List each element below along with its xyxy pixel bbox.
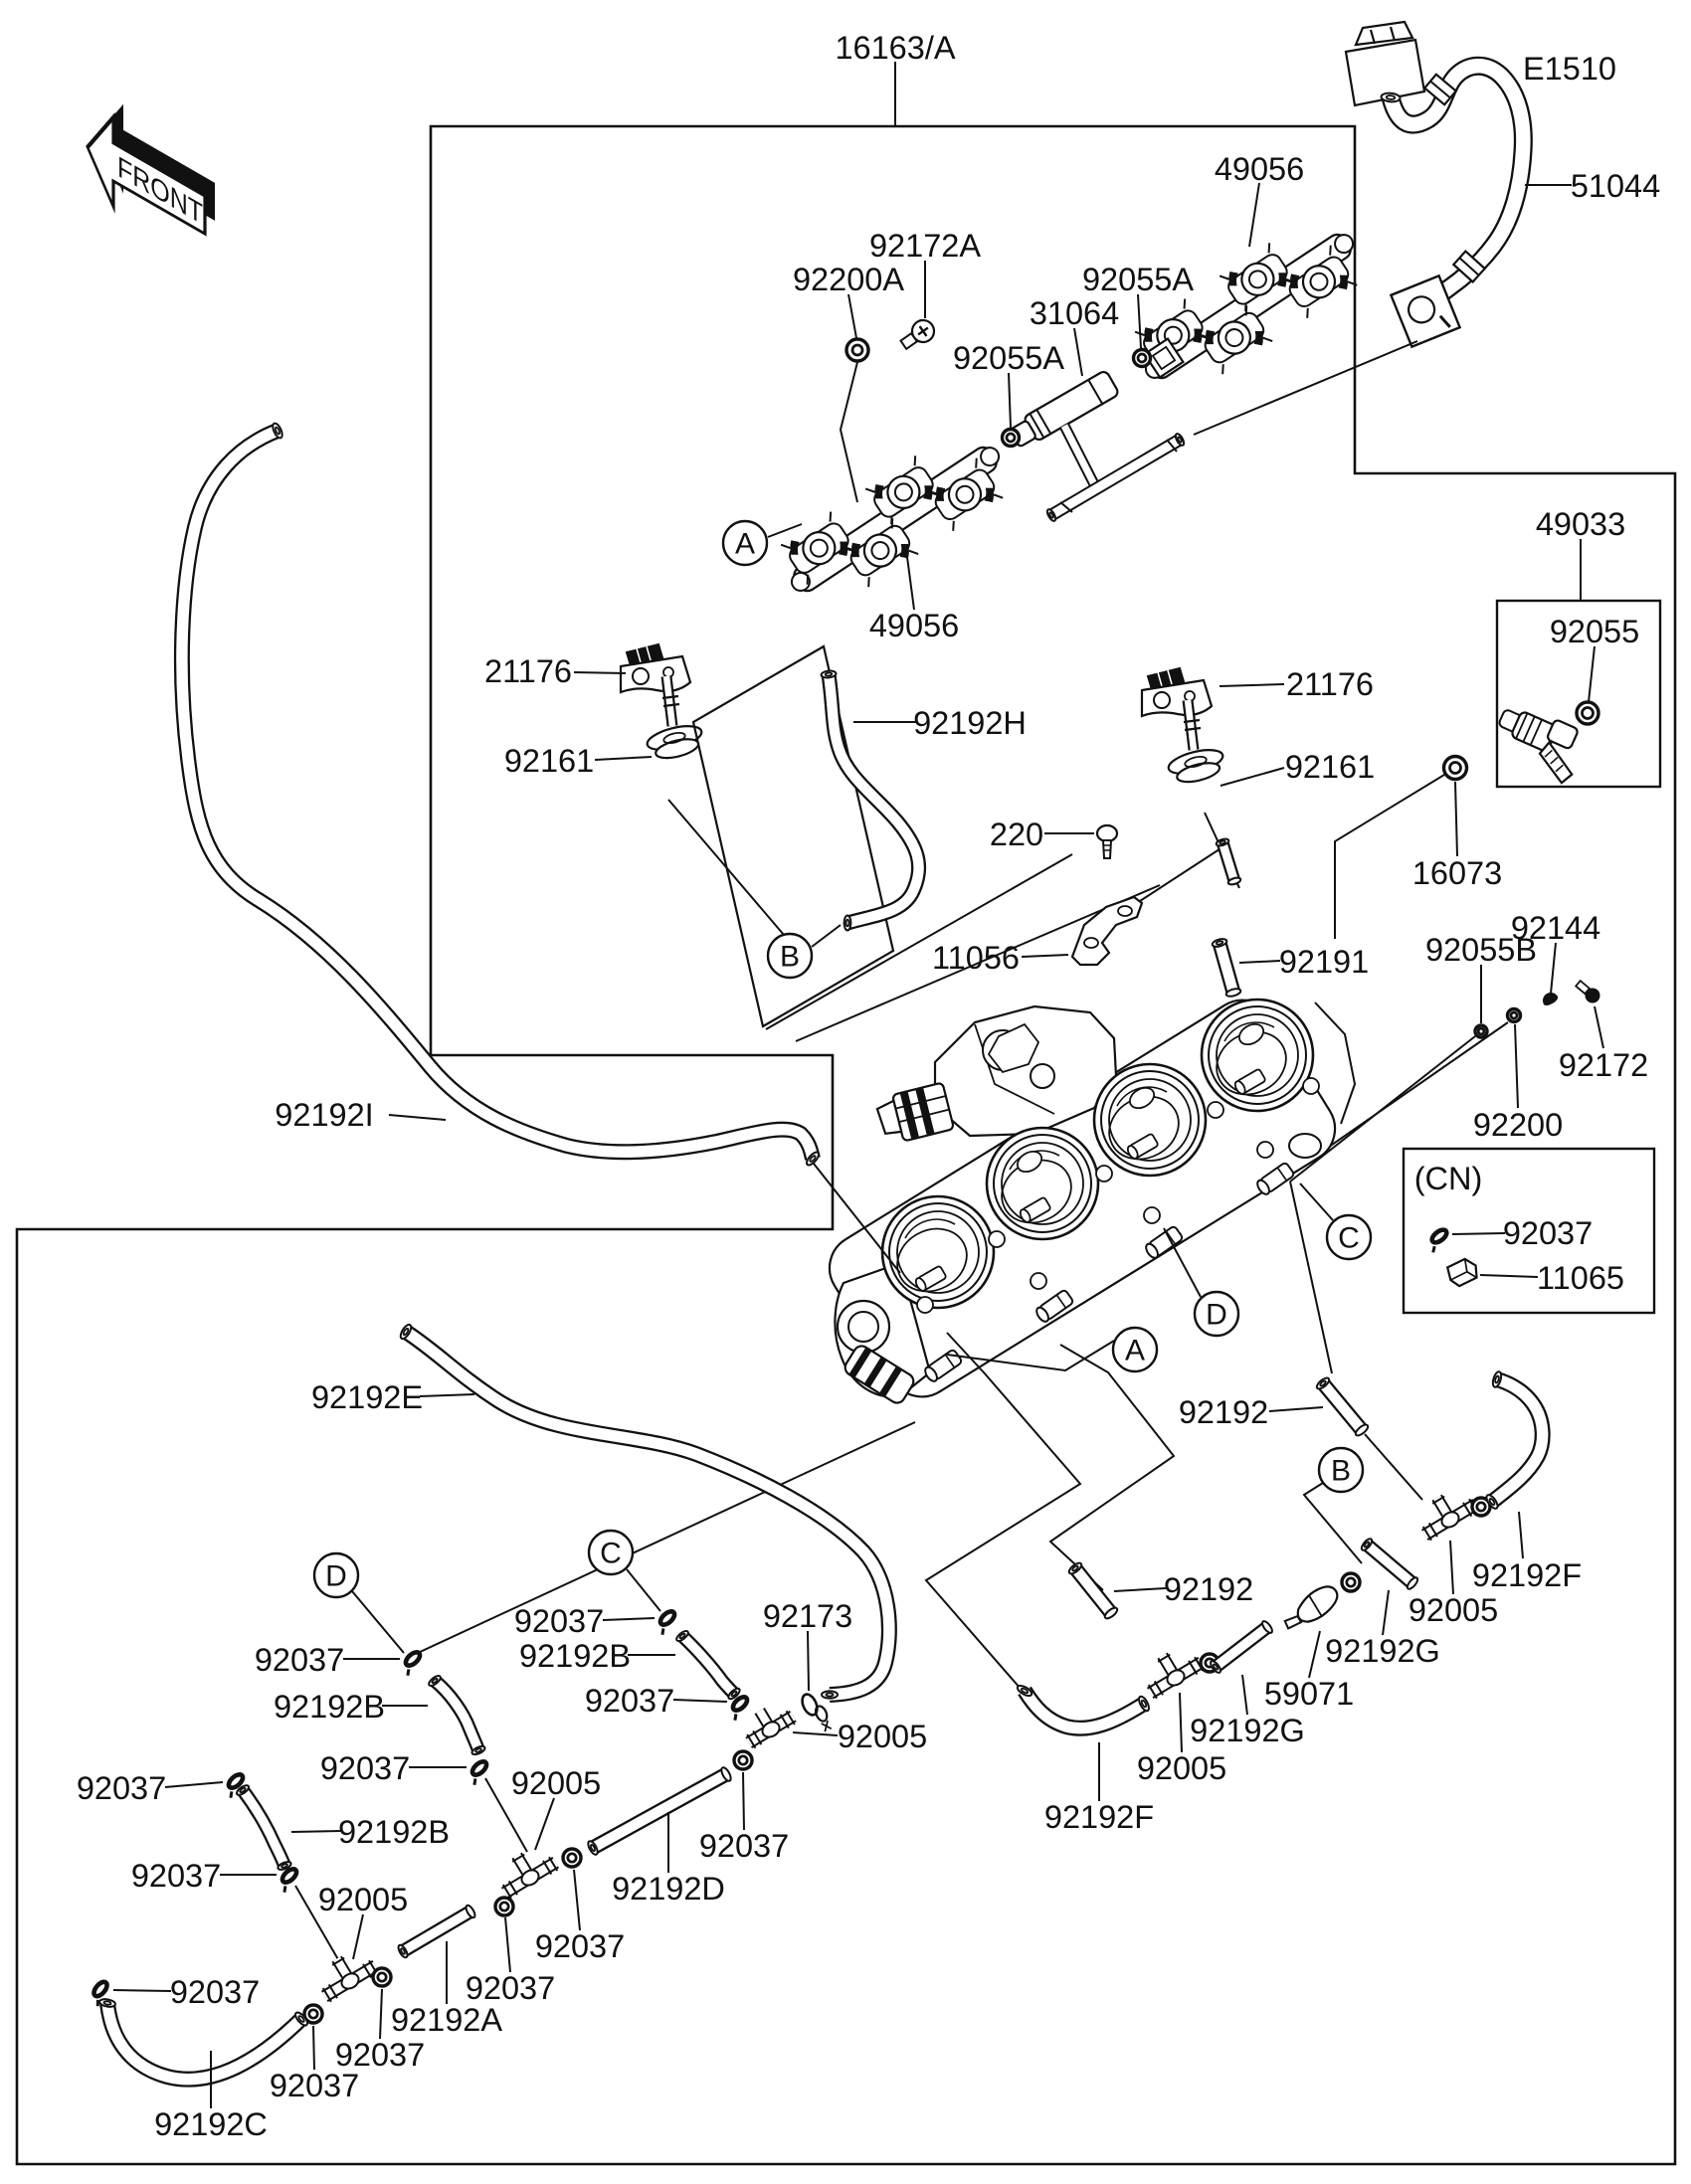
svg-text:92037: 92037 (585, 1683, 674, 1719)
svg-text:92055A: 92055A (1082, 262, 1194, 297)
svg-text:92005: 92005 (1409, 1592, 1498, 1628)
svg-text:92192H: 92192H (913, 705, 1027, 741)
svg-text:92200A: 92200A (793, 262, 904, 297)
svg-text:92192F: 92192F (1472, 1557, 1582, 1593)
svg-text:21176: 21176 (1286, 666, 1374, 702)
svg-text:31064: 31064 (1030, 295, 1119, 331)
svg-text:92161: 92161 (504, 743, 594, 779)
svg-text:16073: 16073 (1412, 855, 1502, 891)
svg-text:(CN): (CN) (1414, 1161, 1483, 1196)
svg-text:92037: 92037 (514, 1603, 604, 1639)
svg-text:92037: 92037 (77, 1770, 166, 1806)
svg-text:B: B (780, 941, 800, 974)
svg-text:49056: 49056 (869, 608, 959, 643)
svg-text:49056: 49056 (1215, 151, 1304, 187)
svg-text:92055: 92055 (1550, 614, 1639, 649)
svg-text:92192: 92192 (1179, 1394, 1268, 1430)
svg-text:51044: 51044 (1571, 168, 1660, 204)
svg-text:92037: 92037 (270, 2068, 359, 2103)
svg-text:92037: 92037 (1503, 1215, 1593, 1251)
svg-text:92192A: 92192A (391, 2002, 502, 2038)
svg-text:92192B: 92192B (519, 1638, 631, 1674)
svg-text:92055B: 92055B (1425, 932, 1537, 968)
svg-text:92192F: 92192F (1044, 1799, 1154, 1835)
svg-text:A: A (735, 528, 755, 561)
svg-text:220: 220 (990, 817, 1043, 852)
svg-text:92005: 92005 (838, 1719, 927, 1754)
svg-text:92200: 92200 (1473, 1107, 1563, 1143)
svg-text:16163/A: 16163/A (835, 30, 955, 66)
svg-text:92192: 92192 (1164, 1571, 1253, 1607)
svg-text:92037: 92037 (255, 1642, 344, 1678)
svg-text:92005: 92005 (511, 1765, 601, 1801)
svg-text:E1510: E1510 (1523, 51, 1616, 87)
svg-text:92192E: 92192E (311, 1379, 423, 1415)
svg-text:92037: 92037 (699, 1828, 789, 1864)
svg-text:92192I: 92192I (275, 1097, 373, 1133)
svg-text:92173: 92173 (763, 1598, 852, 1634)
svg-text:92005: 92005 (1137, 1750, 1226, 1786)
svg-text:59071: 59071 (1264, 1676, 1354, 1712)
svg-text:92037: 92037 (131, 1858, 221, 1894)
svg-text:92192G: 92192G (1325, 1633, 1440, 1669)
svg-text:B: B (1331, 1455, 1351, 1488)
svg-text:92037: 92037 (320, 1750, 410, 1786)
svg-text:21176: 21176 (484, 653, 572, 689)
svg-text:D: D (1206, 1299, 1227, 1332)
svg-text:92161: 92161 (1285, 749, 1375, 785)
svg-text:A: A (1125, 1335, 1145, 1367)
svg-text:92192C: 92192C (154, 2106, 268, 2142)
svg-text:92037: 92037 (170, 1974, 260, 2010)
svg-text:92172A: 92172A (869, 228, 981, 264)
svg-text:92005: 92005 (318, 1882, 408, 1917)
svg-text:11056: 11056 (932, 940, 1020, 976)
svg-text:49033: 49033 (1536, 506, 1625, 542)
svg-text:92037: 92037 (535, 1928, 625, 1964)
svg-text:C: C (1338, 1222, 1360, 1255)
svg-text:92055A: 92055A (953, 340, 1064, 376)
svg-text:92192B: 92192B (274, 1689, 385, 1725)
svg-text:C: C (600, 1538, 622, 1570)
svg-text:92192B: 92192B (338, 1814, 450, 1850)
svg-text:92037: 92037 (466, 1970, 555, 2006)
svg-text:92172: 92172 (1559, 1047, 1648, 1083)
svg-text:92192D: 92192D (612, 1871, 725, 1907)
svg-text:11065: 11065 (1537, 1260, 1624, 1296)
svg-text:92192G: 92192G (1190, 1713, 1305, 1748)
svg-text:92191: 92191 (1279, 944, 1369, 980)
svg-text:D: D (325, 1560, 347, 1593)
